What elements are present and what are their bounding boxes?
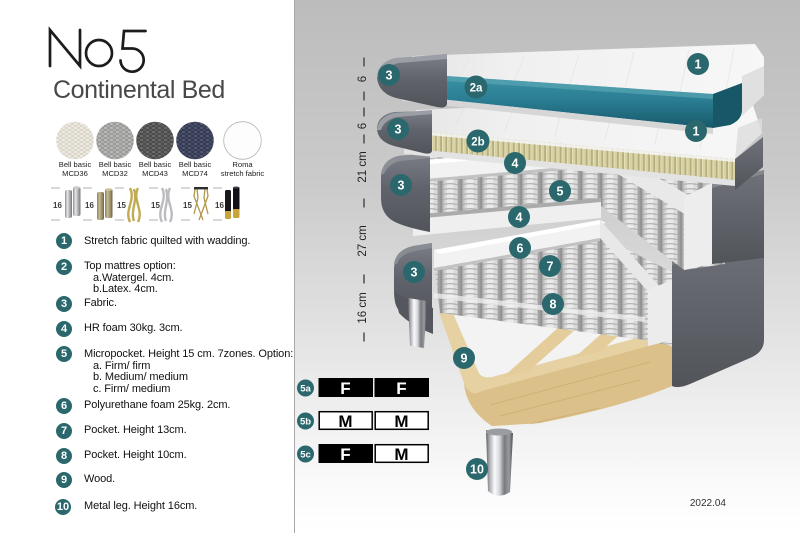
svg-text:8: 8	[550, 298, 557, 312]
svg-text:6: 6	[357, 76, 369, 82]
svg-text:F: F	[340, 379, 350, 398]
svg-text:7: 7	[547, 260, 554, 274]
svg-text:M: M	[338, 412, 352, 431]
svg-text:M: M	[394, 445, 408, 464]
svg-text:M: M	[394, 412, 408, 431]
svg-text:16 cm: 16 cm	[357, 292, 369, 323]
svg-text:10: 10	[470, 463, 484, 477]
svg-text:4: 4	[512, 157, 519, 171]
svg-text:3: 3	[386, 69, 393, 83]
svg-text:Bell basic: Bell basic	[99, 160, 132, 169]
svg-text:F: F	[340, 445, 350, 464]
svg-text:5b: 5b	[300, 417, 311, 428]
svg-text:4: 4	[516, 211, 523, 225]
svg-text:3: 3	[395, 123, 402, 137]
svg-text:Roma: Roma	[232, 160, 253, 169]
svg-text:MCD32: MCD32	[102, 169, 128, 178]
svg-text:16: 16	[85, 201, 94, 210]
svg-text:2a: 2a	[470, 83, 483, 95]
svg-text:5c: 5c	[300, 450, 311, 461]
svg-text:5: 5	[557, 185, 564, 199]
svg-text:2b: 2b	[471, 137, 484, 149]
svg-text:15: 15	[151, 201, 160, 210]
svg-text:F: F	[396, 379, 406, 398]
svg-text:MCD43: MCD43	[142, 169, 168, 178]
svg-text:15: 15	[183, 201, 192, 210]
svg-text:16: 16	[53, 201, 62, 210]
svg-text:21 cm: 21 cm	[357, 151, 369, 182]
svg-text:stretch fabric: stretch fabric	[221, 169, 265, 178]
svg-text:27 cm: 27 cm	[357, 225, 369, 256]
svg-text:2022.04: 2022.04	[690, 498, 727, 509]
svg-text:Bell basic: Bell basic	[179, 160, 212, 169]
svg-text:9: 9	[461, 352, 468, 366]
svg-text:1: 1	[693, 125, 700, 139]
svg-text:3: 3	[398, 179, 405, 193]
svg-text:6: 6	[517, 242, 524, 256]
svg-text:16: 16	[215, 201, 224, 210]
svg-text:Bell basic: Bell basic	[59, 160, 92, 169]
svg-text:3: 3	[411, 266, 418, 280]
svg-text:15: 15	[117, 201, 126, 210]
svg-text:5a: 5a	[300, 384, 311, 395]
svg-text:MCD74: MCD74	[182, 169, 208, 178]
svg-text:6: 6	[357, 123, 369, 129]
svg-text:Bell basic: Bell basic	[139, 160, 172, 169]
svg-text:1: 1	[695, 58, 702, 72]
svg-text:MCD36: MCD36	[62, 169, 88, 178]
